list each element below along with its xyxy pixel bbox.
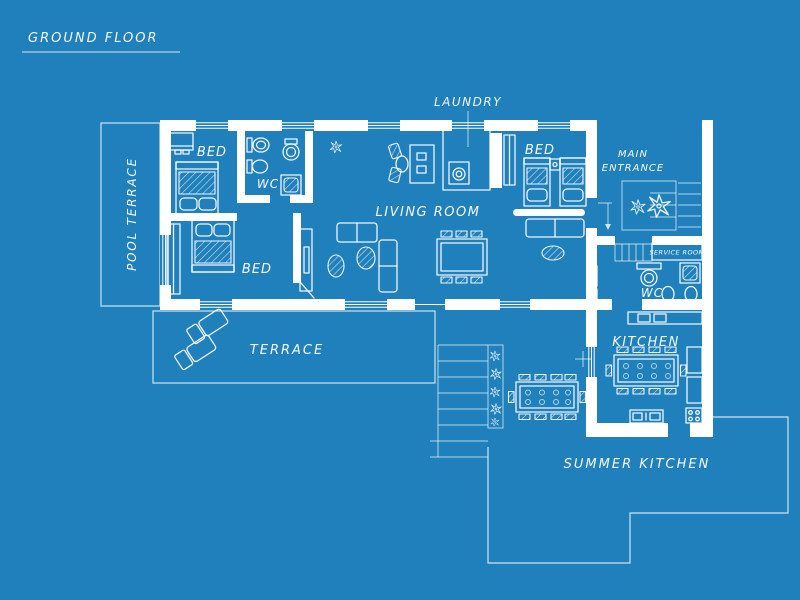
entrance-steps	[678, 183, 701, 227]
single-bed	[560, 158, 586, 206]
counter-top	[628, 312, 702, 324]
entrance-porch	[622, 181, 676, 230]
kitchen: KITCHEN	[606, 312, 702, 423]
room-label-summer-kitchen: SUMMER KITCHEN	[564, 457, 711, 472]
page-title-group: GROUND FLOOR	[22, 31, 180, 52]
oven-range	[630, 410, 663, 423]
plant-icon	[330, 141, 342, 153]
shower	[680, 263, 700, 283]
washing-machine	[449, 162, 469, 184]
stove	[686, 408, 702, 423]
nightstand	[550, 159, 560, 170]
bedroom-1: BED	[167, 133, 227, 214]
double-bed	[192, 220, 234, 272]
service-room: SERVICE ROOM	[650, 243, 705, 260]
room-label-bed-1: BED	[197, 145, 227, 160]
room-label-main-entrance-1: MAIN	[618, 149, 648, 160]
sink	[283, 139, 299, 160]
tv-unit	[300, 229, 312, 291]
main-entrance: MAIN ENTRANCE	[598, 149, 701, 230]
floor-plan-drawing: GROUND FLOOR POOL TERRACE TERRACE SUMMER…	[0, 0, 800, 600]
summer-kitchen-area	[488, 417, 788, 563]
flower-bed	[488, 345, 503, 428]
room-label-terrace: TERRACE	[250, 343, 324, 358]
wc-1: WC	[247, 138, 301, 195]
room-label-living-room: LIVING ROOM	[376, 205, 481, 220]
toilet	[247, 138, 269, 152]
bidet	[247, 160, 268, 173]
plant-icon	[648, 195, 671, 218]
room-label-service-room: SERVICE ROOM	[650, 249, 705, 257]
plant-icon	[631, 200, 645, 214]
sink	[637, 263, 661, 286]
counter-right	[687, 347, 702, 403]
dining-table	[437, 231, 487, 283]
room-label-bed-2: BED	[242, 262, 272, 277]
outdoor-table	[509, 375, 586, 420]
room-label-laundry: LAUNDRY	[434, 95, 502, 109]
room-label-wc-2: WC	[641, 286, 663, 300]
laundry: LAUNDRY	[434, 95, 515, 190]
room-label-wc-1: WC	[257, 177, 279, 191]
kitchen-table	[606, 347, 686, 394]
page-title: GROUND FLOOR	[28, 31, 159, 46]
bench-sofa	[526, 219, 584, 260]
blueprint-canvas: GROUND FLOOR POOL TERRACE TERRACE SUMMER…	[0, 0, 800, 600]
shower	[281, 175, 301, 195]
bedroom-2: BED	[167, 220, 314, 298]
double-bed	[176, 162, 218, 214]
single-bed	[524, 158, 550, 206]
interior-stairs	[615, 244, 652, 261]
desk-workstation	[388, 143, 434, 183]
sun-loungers	[174, 308, 229, 370]
sofa-set	[328, 223, 397, 292]
room-label-pool-terrace: POOL TERRACE	[125, 157, 139, 271]
garden-stairs	[430, 345, 488, 457]
entry-path-arrow	[598, 203, 612, 230]
room-label-main-entrance-2: ENTRANCE	[602, 163, 664, 174]
room-label-bed-3: BED	[525, 143, 555, 158]
bedroom-3: BED	[524, 143, 586, 206]
hall-closet	[504, 135, 515, 185]
laundry-partition	[443, 131, 490, 190]
